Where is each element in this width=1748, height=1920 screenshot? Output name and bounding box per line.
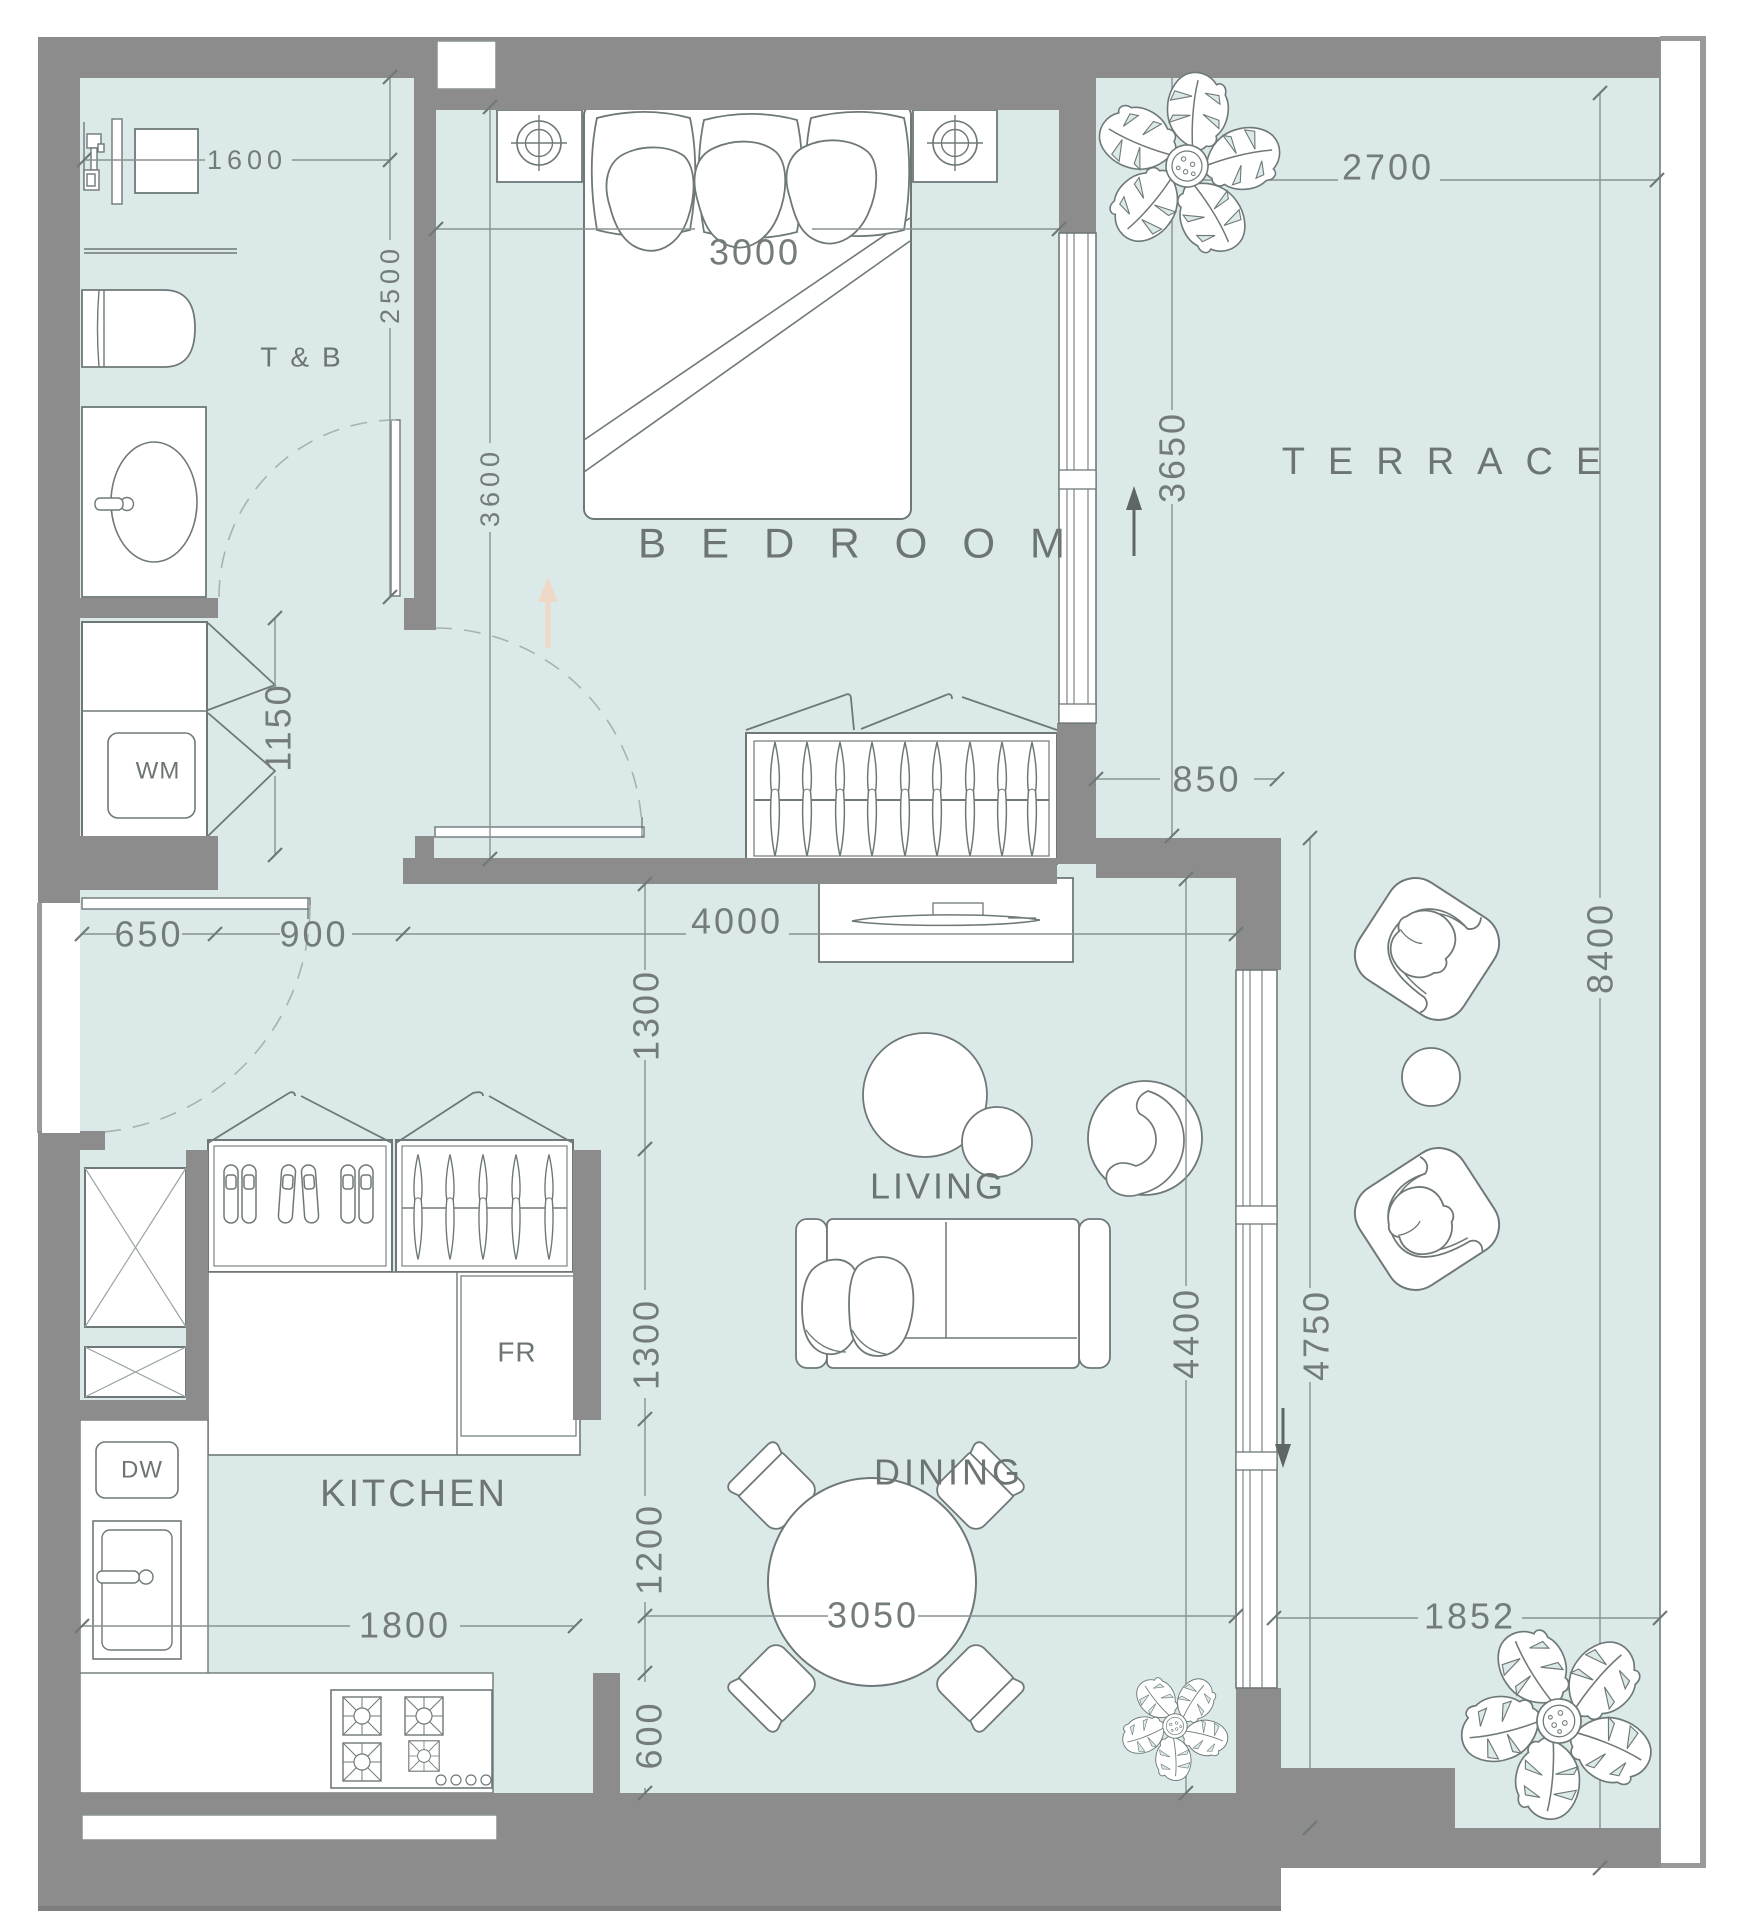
svg-text:3650: 3650 <box>1152 411 1193 503</box>
svg-text:DW: DW <box>121 1457 163 1484</box>
svg-text:LIVING: LIVING <box>870 1166 1006 1207</box>
svg-text:900: 900 <box>279 914 348 955</box>
svg-text:TERRACE: TERRACE <box>1282 441 1625 483</box>
svg-text:FR: FR <box>497 1337 536 1368</box>
svg-text:4750: 4750 <box>1296 1289 1337 1381</box>
svg-text:1600: 1600 <box>207 145 287 175</box>
svg-text:1200: 1200 <box>629 1503 670 1595</box>
svg-text:2700: 2700 <box>1342 147 1434 188</box>
svg-text:850: 850 <box>1172 759 1241 800</box>
svg-text:4000: 4000 <box>691 901 783 942</box>
svg-text:T&B: T&B <box>260 342 353 373</box>
svg-text:3050: 3050 <box>827 1595 919 1636</box>
svg-text:8400: 8400 <box>1580 902 1621 994</box>
svg-text:3000: 3000 <box>709 232 801 273</box>
svg-text:WM: WM <box>136 758 181 785</box>
svg-text:1300: 1300 <box>626 1298 667 1390</box>
svg-text:DINING: DINING <box>874 1452 1024 1493</box>
svg-text:2500: 2500 <box>375 244 405 324</box>
svg-text:650: 650 <box>114 914 183 955</box>
svg-text:1800: 1800 <box>359 1605 451 1646</box>
svg-text:1300: 1300 <box>626 969 667 1061</box>
svg-text:3600: 3600 <box>475 447 505 527</box>
svg-text:1852: 1852 <box>1424 1596 1516 1637</box>
svg-text:4400: 4400 <box>1166 1287 1207 1379</box>
svg-text:BEDROOM: BEDROOM <box>638 520 1100 567</box>
svg-text:600: 600 <box>629 1700 670 1769</box>
svg-text:1150: 1150 <box>258 682 299 771</box>
svg-text:KITCHEN: KITCHEN <box>320 1473 508 1515</box>
